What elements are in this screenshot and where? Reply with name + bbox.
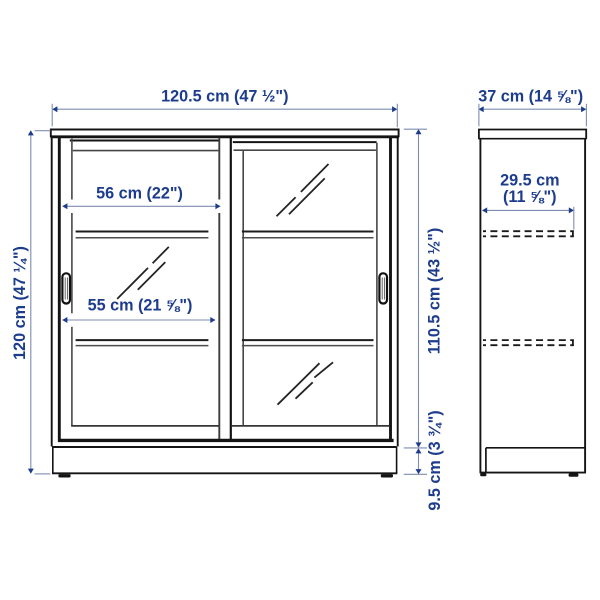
svg-text:9.5 cm (3 ¾"): 9.5 cm (3 ¾"): [426, 410, 444, 510]
svg-text:110.5 cm (43 ½"): 110.5 cm (43 ½"): [426, 228, 444, 354]
svg-text:120 cm (47 ¼"): 120 cm (47 ¼"): [11, 246, 29, 360]
svg-text:120.5 cm (47 ½"): 120.5 cm (47 ½"): [161, 88, 288, 106]
svg-text:(11 ⅝"): (11 ⅝"): [503, 188, 557, 206]
svg-text:55 cm (21 ⅝"): 55 cm (21 ⅝"): [88, 296, 193, 314]
svg-text:37 cm (14 ⅝"): 37 cm (14 ⅝"): [478, 88, 583, 106]
svg-text:56 cm (22"): 56 cm (22"): [96, 184, 183, 202]
svg-text:29.5 cm: 29.5 cm: [500, 171, 559, 189]
